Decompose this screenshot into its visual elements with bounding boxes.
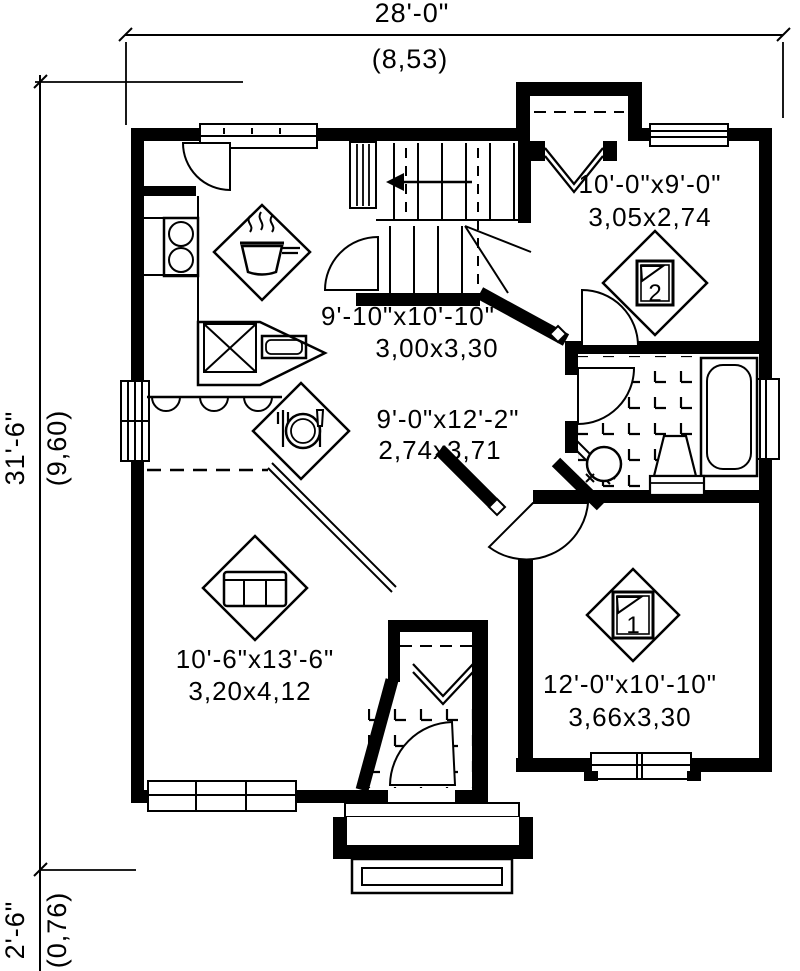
living-window xyxy=(148,781,296,811)
porch-steps xyxy=(333,803,533,893)
closet-bump-top-wall xyxy=(516,82,642,96)
bedroom1-window xyxy=(585,753,700,780)
bedroom1-size-imperial: 12'-0"x10'-10" xyxy=(543,669,717,699)
left-dim-imperial: 31'-6" xyxy=(0,411,30,486)
stove-burner xyxy=(169,222,193,246)
closet-bump-left-wall xyxy=(516,82,530,141)
porch-dim-metric: (0,76) xyxy=(42,892,72,969)
kitchen-size-metric: 3,00x3,30 xyxy=(375,333,498,363)
bed-icon: 1 xyxy=(613,592,653,639)
left-dim-metric: (9,60) xyxy=(42,410,72,487)
living-size-imperial: 10'-6"x13'-6" xyxy=(176,644,334,674)
floor-plan-canvas: 28'-0" (8,53) 31'-6" (9,60) 2'-6" (0,76) xyxy=(0,0,800,971)
bed-icon: 2 xyxy=(637,261,673,307)
stair-winders xyxy=(465,226,531,293)
dining-size-imperial: 9'-0"x12'-2" xyxy=(376,404,519,434)
bedroom1-door xyxy=(489,503,588,559)
entry-closet-bifold-doors xyxy=(413,664,473,704)
floor-plan-page: 28'-0" (8,53) 31'-6" (9,60) 2'-6" (0,76) xyxy=(0,0,800,971)
bathroom-bottom-wall xyxy=(533,490,759,503)
left-wall xyxy=(131,128,144,803)
front-door-opening xyxy=(388,789,455,804)
bedroom2-size-metric: 3,05x2,74 xyxy=(588,202,711,232)
kitchen-fixtures xyxy=(144,196,325,411)
top-dim-imperial: 28'-0" xyxy=(375,0,450,28)
kitchen-icon-diamond xyxy=(214,205,310,300)
bathroom-left-wall-upper xyxy=(565,341,578,375)
kitchen-counter xyxy=(144,196,198,322)
living-size-metric: 3,20x4,12 xyxy=(188,676,311,706)
pantry-door xyxy=(183,143,230,190)
bedroom2-badge: 2 xyxy=(648,280,661,307)
top-wall-stairs xyxy=(356,128,516,141)
bedroom1-icon-diamond: 1 xyxy=(587,569,679,661)
bedroom2-size-imperial: 10'-0"x9'-0" xyxy=(578,169,721,199)
closet-bump-right-wall xyxy=(628,82,642,141)
living-icon-diamond xyxy=(203,536,307,640)
bathroom-left-wall-lower xyxy=(565,421,578,453)
stair-treads-lower xyxy=(390,226,462,293)
door-threshold xyxy=(345,803,519,817)
porch-dim-imperial: 2'-6" xyxy=(0,901,30,960)
bar-stools xyxy=(152,397,272,411)
sofa-icon xyxy=(224,572,286,606)
bedroom2-window xyxy=(650,124,728,146)
stove-burner xyxy=(169,248,193,272)
foyer-right-wall xyxy=(472,620,488,803)
toilet-tank xyxy=(650,476,704,495)
bedroom1-left-wall xyxy=(518,545,533,772)
bedroom1-badge: 1 xyxy=(626,612,639,639)
stair-right-wall xyxy=(518,141,531,223)
dining-window xyxy=(121,381,149,461)
foyer-closet-top-wall xyxy=(388,620,484,632)
hall-kitchen-door xyxy=(325,237,378,290)
dining-size-metric: 2,74x3,71 xyxy=(378,435,501,465)
top-dim-metric: (8,53) xyxy=(372,44,449,74)
bedroom1-size-metric: 3,66x3,30 xyxy=(568,702,691,732)
bathtub-basin xyxy=(707,365,751,469)
kitchen-size-imperial: 9'-10"x10'-10" xyxy=(321,301,495,331)
pantry-wall-stub xyxy=(144,186,196,196)
